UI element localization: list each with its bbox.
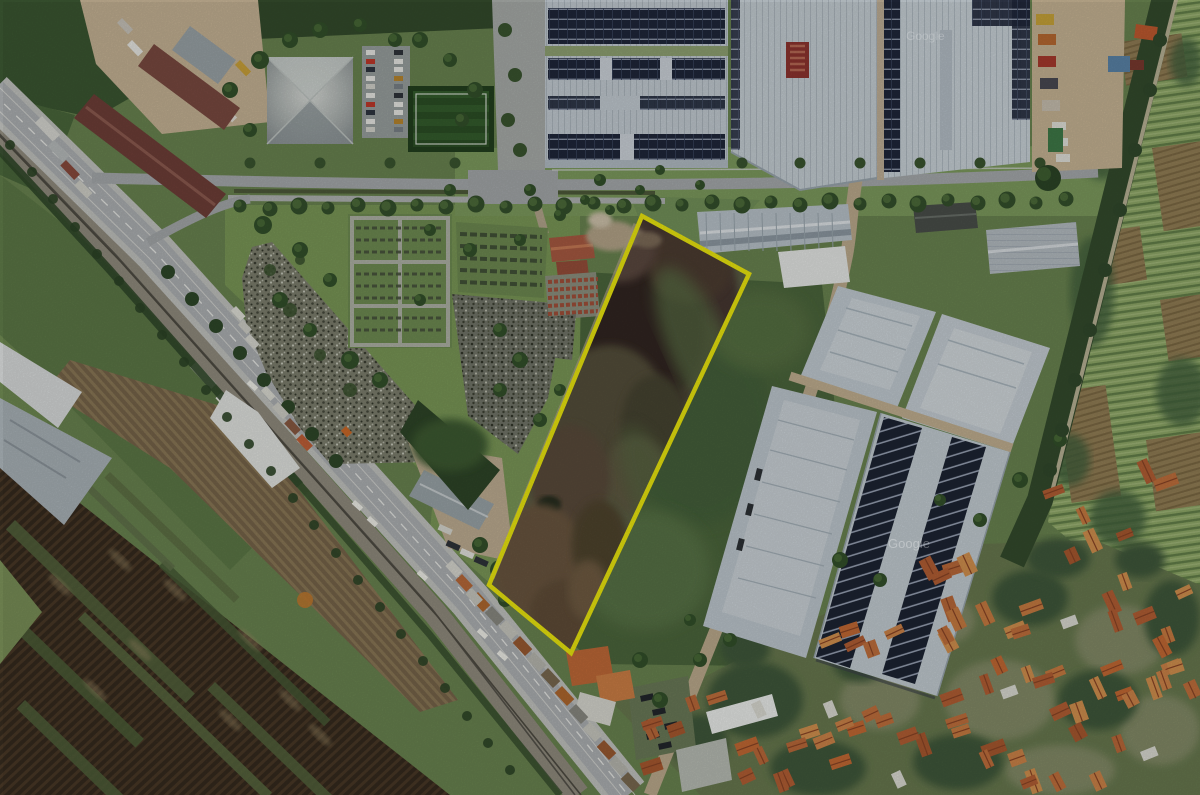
svg-text:Google: Google xyxy=(888,536,930,551)
svg-text:Google: Google xyxy=(906,29,945,43)
